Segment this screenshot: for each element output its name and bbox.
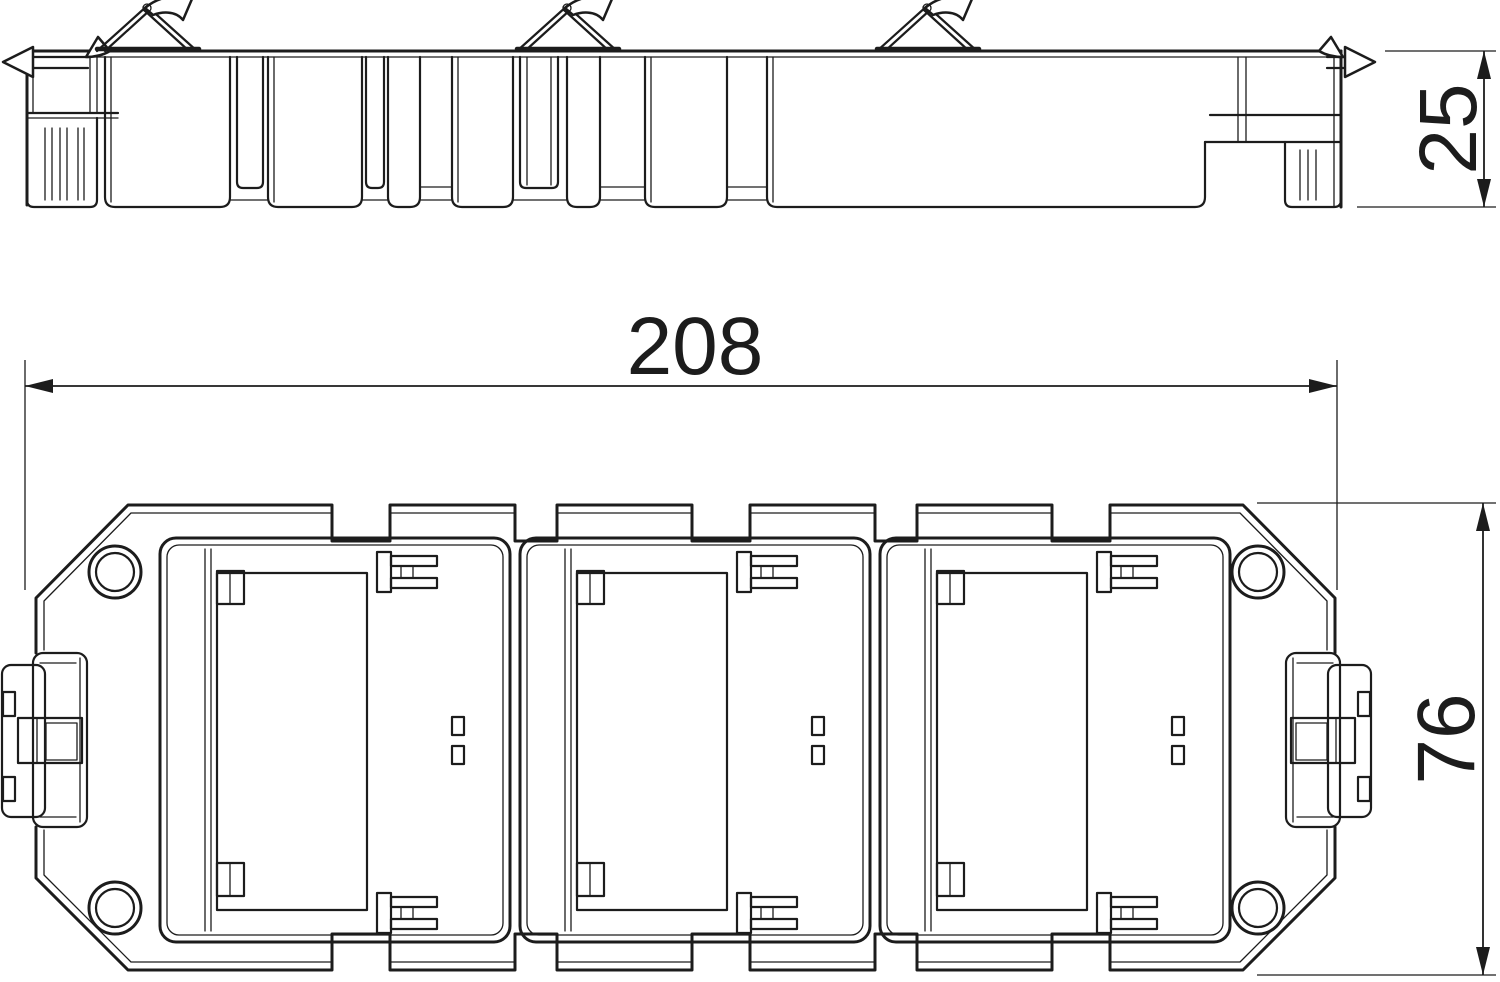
depth-dimension-label: 76: [1401, 693, 1492, 784]
underside-panels: [105, 57, 1205, 207]
retaining-hook-3: [877, 0, 979, 51]
bay3-cover-plate: [880, 538, 1230, 942]
bay2-cover-plate: [520, 538, 870, 942]
technical-drawing-canvas: 208 76 25: [0, 0, 1500, 982]
side-view: [3, 0, 1375, 207]
plate-outline: [36, 505, 1335, 970]
bay2-hinge-line: [565, 549, 571, 931]
right-end-cap: [1205, 51, 1341, 207]
mounting-hole-top-left: [89, 546, 141, 598]
bay1-clip-top: [217, 571, 244, 604]
bay1-opening: [217, 573, 367, 910]
module-bay-3: [880, 538, 1230, 942]
left-fixing-pin: [3, 37, 110, 77]
bay3-hinge-line: [925, 549, 931, 931]
bay3-clip-bottom: [937, 863, 964, 896]
bay2-latch-top: [737, 552, 797, 592]
mounting-hole-top-right: [1232, 546, 1284, 598]
right-fixing-pin: [1319, 37, 1375, 77]
retaining-hook-2: [517, 0, 619, 51]
bay2-vent-slots: [812, 717, 824, 764]
module-bay-1: [160, 538, 510, 942]
side-latch-right: [1286, 653, 1371, 827]
retaining-hook-1: [97, 0, 199, 51]
drawing-sheet: 208 76 25: [0, 0, 1500, 982]
plan-view: [2, 505, 1371, 970]
bay1-cover-plate: [160, 538, 510, 942]
bay1-latch-bottom: [377, 893, 437, 933]
bay3-clip-top: [937, 571, 964, 604]
height-arrow-bottom: [1477, 179, 1491, 207]
bay2-latch-bottom: [737, 893, 797, 933]
mounting-hole-bottom-right: [1232, 882, 1284, 934]
bay1-latch-top: [377, 552, 437, 592]
height-dimension-label: 25: [1403, 83, 1494, 174]
bay2-clip-top: [577, 571, 604, 604]
bay3-opening: [937, 573, 1087, 910]
bay1-hinge-line: [205, 549, 211, 931]
bay1-vent-slots: [452, 717, 464, 764]
depth-arrow-top: [1476, 503, 1490, 531]
bay3-latch-top: [1097, 552, 1157, 592]
depth-arrow-bottom: [1476, 947, 1490, 975]
bay2-clip-bottom: [577, 863, 604, 896]
bay2-opening: [577, 573, 727, 910]
bay3-latch-bottom: [1097, 893, 1157, 933]
width-arrow-left: [25, 379, 53, 393]
height-dimension: 25: [1357, 51, 1496, 207]
width-dimension: 208: [25, 301, 1337, 590]
mounting-hole-bottom-left: [89, 882, 141, 934]
height-arrow-top: [1477, 51, 1491, 79]
bay3-vent-slots: [1172, 717, 1184, 764]
width-dimension-label: 208: [627, 301, 764, 392]
bay1-clip-bottom: [217, 863, 244, 896]
plate-inner-outline: [44, 513, 1327, 962]
width-arrow-right: [1309, 379, 1337, 393]
module-bay-2: [520, 538, 870, 942]
side-latch-left: [2, 653, 87, 827]
